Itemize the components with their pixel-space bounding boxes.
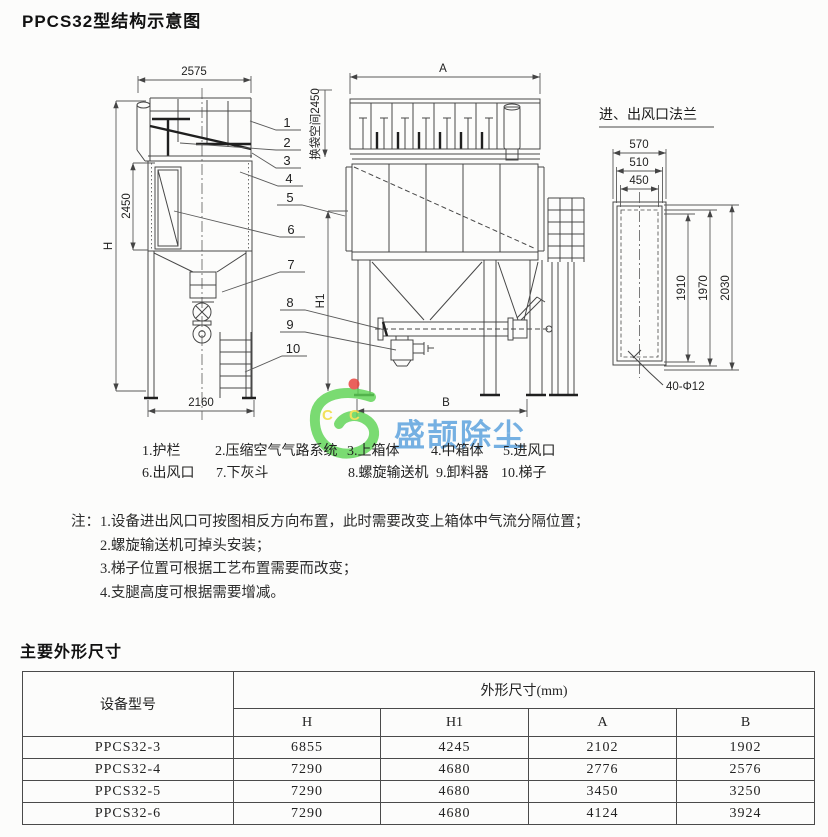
dim-1970-label: 1970	[698, 275, 710, 301]
table-row: PPCS32-3 6855 4245 2102 1902	[23, 737, 815, 759]
cell-H: 7290	[234, 781, 381, 803]
cell-A: 3450	[529, 781, 677, 803]
dim-570-label: 570	[629, 139, 648, 151]
watermark-dot-icon	[349, 379, 360, 390]
callout-9: 9	[286, 317, 293, 332]
cell-model: PPCS32-6	[23, 803, 234, 825]
col-header-group: 外形尺寸(mm)	[234, 672, 815, 709]
cell-H1: 4680	[381, 781, 529, 803]
notes-label: 注：	[71, 514, 100, 530]
cell-B: 1902	[677, 737, 815, 759]
legend-item-1: 1.护栏	[142, 440, 181, 460]
legend-item-5: 5.进风口	[503, 440, 556, 460]
dim-2575-label: 2575	[181, 66, 207, 78]
note-line-4: 4.支腿高度可根据需要增减。	[71, 582, 589, 606]
legend-item-9: 9.卸料器	[436, 462, 489, 482]
flange-detail: 进、出风口法兰 570 510 450 1910 1970 2	[599, 107, 739, 393]
cell-model: PPCS32-4	[23, 759, 234, 781]
col-header-A: A	[529, 709, 677, 737]
bolt-note-label: 40-Φ12	[666, 381, 705, 393]
cell-H: 7290	[234, 759, 381, 781]
cell-B: 2576	[677, 759, 815, 781]
table-header-row-1: 设备型号 外形尺寸(mm)	[23, 672, 815, 709]
note-line-1: 注：1.设备进出风口可按图相反方向布置，此时需要改变上箱体中气流分隔位置；	[71, 511, 589, 535]
legend-item-10: 10.梯子	[501, 462, 547, 482]
col-header-model: 设备型号	[23, 672, 234, 737]
structure-diagram: 2575 H 2450 2160	[0, 0, 828, 500]
side-view: 2575 H 2450 2160	[103, 66, 256, 420]
note-text-1: 1.设备进出风口可按图相反方向布置，此时需要改变上箱体中气流分隔位置；	[100, 514, 589, 530]
callout-7: 7	[287, 257, 294, 272]
legend-item-6: 6.出风口	[142, 462, 195, 482]
callout-6: 6	[287, 222, 294, 237]
cell-model: PPCS32-5	[23, 781, 234, 803]
flange-detail-title: 进、出风口法兰	[599, 107, 697, 123]
cell-H: 7290	[234, 803, 381, 825]
callout-1: 1	[283, 115, 290, 130]
cell-A: 2102	[529, 737, 677, 759]
col-header-H: H	[234, 709, 381, 737]
cell-H: 6855	[234, 737, 381, 759]
dim-2450-label: 2450	[121, 193, 133, 219]
front-view: A 换袋空间2450 H1 B	[308, 63, 584, 417]
dim-1910-label: 1910	[676, 275, 688, 301]
dim-A-label: A	[439, 63, 447, 75]
cell-H1: 4680	[381, 759, 529, 781]
dim-450-label: 450	[629, 175, 648, 187]
dim-2160-label: 2160	[188, 397, 214, 409]
table-row: PPCS32-5 7290 4680 3450 3250	[23, 781, 815, 803]
legend-item-3: 3.上箱体	[347, 440, 400, 460]
col-header-H1: H1	[381, 709, 529, 737]
section-title: 主要外形尺寸	[20, 638, 122, 662]
dim-510-label: 510	[629, 157, 648, 169]
dim-H-label: H	[103, 242, 115, 250]
dim-H1-label: H1	[315, 294, 327, 309]
notes-block: 注：1.设备进出风口可按图相反方向布置，此时需要改变上箱体中气流分隔位置； 2.…	[71, 511, 589, 605]
watermark-letter-2: C	[349, 407, 360, 424]
callout-10: 10	[286, 341, 300, 356]
cell-B: 3924	[677, 803, 815, 825]
callout-4: 4	[285, 171, 292, 186]
callout-8: 8	[286, 295, 293, 310]
dimensions-table: 设备型号 外形尺寸(mm) H H1 A B PPCS32-3 6855 424…	[22, 671, 815, 825]
legend-item-4: 4.中箱体	[431, 440, 484, 460]
table-row: PPCS32-4 7290 4680 2776 2576	[23, 759, 815, 781]
bag-space-label: 换袋空间2450	[308, 88, 322, 160]
legend-item-8: 8.螺旋输送机	[348, 462, 429, 482]
callout-3: 3	[283, 153, 290, 168]
table-row: PPCS32-6 7290 4680 4124 3924	[23, 803, 815, 825]
cell-A: 4124	[529, 803, 677, 825]
cell-A: 2776	[529, 759, 677, 781]
cell-B: 3250	[677, 781, 815, 803]
dim-2030-label: 2030	[720, 275, 732, 301]
note-line-2: 2.螺旋输送机可掉头安装；	[71, 535, 589, 559]
cell-model: PPCS32-3	[23, 737, 234, 759]
legend-item-7: 7.下灰斗	[216, 462, 269, 482]
cell-H1: 4245	[381, 737, 529, 759]
dim-B-label: B	[442, 397, 450, 409]
cell-H1: 4680	[381, 803, 529, 825]
catalog-page: PPCS32型结构示意图	[0, 0, 828, 837]
legend-item-2: 2.压缩空气气路系统	[215, 440, 338, 460]
callout-2: 2	[283, 135, 290, 150]
callout-5: 5	[286, 190, 293, 205]
note-line-3: 3.梯子位置可根据工艺布置需要而改变；	[71, 558, 589, 582]
watermark-letter-1: C	[322, 407, 333, 424]
col-header-B: B	[677, 709, 815, 737]
